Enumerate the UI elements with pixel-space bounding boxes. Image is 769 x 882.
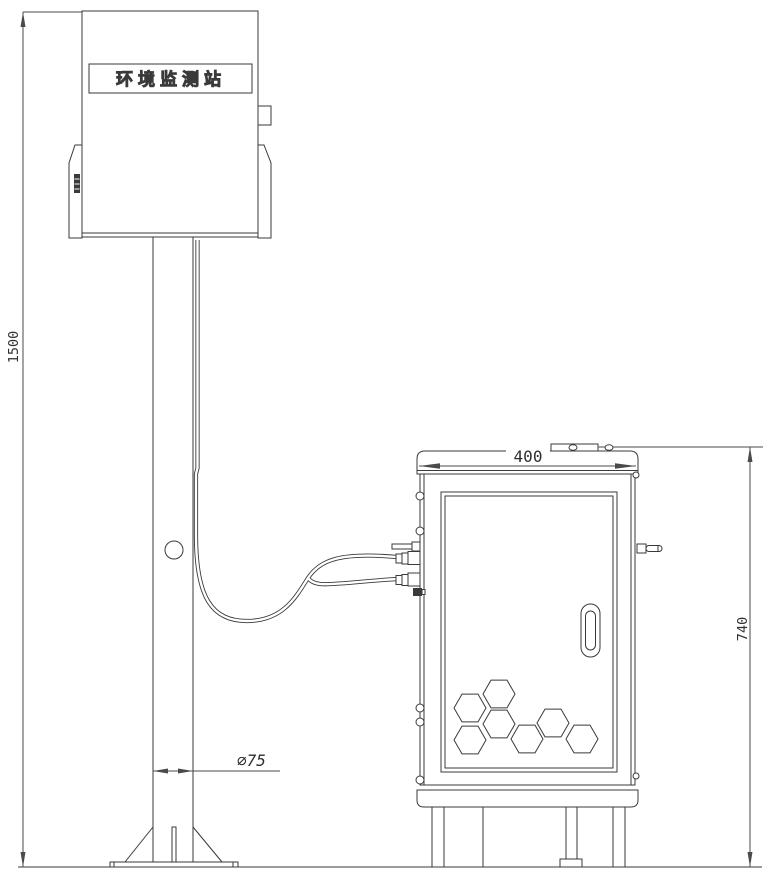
dimension-pole-diameter: ∅75 — [153, 751, 280, 774]
edge-detail — [633, 472, 639, 478]
left-gusset — [125, 827, 153, 862]
cable-upper-outline — [196, 240, 397, 621]
side-sensor-box — [258, 106, 271, 125]
right-leg-foot — [560, 859, 582, 867]
antenna-rod — [646, 546, 662, 552]
cable-gland-upper — [396, 554, 402, 563]
monitor-head-box: 环境监测站 — [69, 11, 271, 238]
dimension-value-740: 740 — [735, 617, 751, 641]
arrowhead-up — [21, 12, 26, 27]
antenna-mount — [637, 544, 646, 553]
dimension-pole-height: 1500 — [6, 12, 82, 867]
equipment-cabinet: 400 — [392, 444, 763, 867]
power-connector-tab — [422, 590, 425, 595]
top-hinge-knuckle — [605, 445, 613, 451]
connection-cables — [196, 240, 397, 621]
cable-gland-upper — [408, 552, 420, 565]
right-leg — [566, 807, 625, 867]
cable-gland-upper — [402, 553, 408, 564]
door-handle-outer — [581, 604, 600, 657]
cabinet-legs — [432, 807, 625, 867]
cable-upper-core — [196, 240, 397, 621]
cable-gland-lower — [396, 576, 402, 585]
sensor-rod-mount — [412, 542, 420, 551]
arrowhead-up — [748, 447, 753, 462]
hinge-knuckle — [416, 704, 424, 712]
hinge-knuckle — [416, 527, 424, 535]
hinge-knuckle — [416, 718, 424, 726]
pole-cable-hole — [165, 541, 183, 559]
hinge-knuckle — [416, 492, 424, 500]
arrowhead-down — [748, 852, 753, 867]
arrowhead-left — [153, 769, 168, 774]
dimension-value-1500: 1500 — [6, 331, 22, 364]
environmental-monitoring-station-drawing: 1500 环境监测站 ∅75 — [0, 0, 769, 882]
base-plate — [110, 862, 238, 867]
dimension-cabinet-height: 740 — [735, 447, 753, 867]
cabinet-bottom-cap — [417, 790, 638, 807]
sensor-rod — [392, 544, 412, 549]
hinge-knuckle — [416, 776, 424, 784]
dimension-value-diameter: ∅75 — [237, 751, 266, 770]
cable-gland-lower — [402, 575, 408, 586]
arrowhead-right — [178, 769, 193, 774]
arrowhead-down — [21, 852, 26, 867]
left-leg — [432, 807, 483, 867]
right-antenna — [637, 544, 662, 553]
station-name-label: 环境监测站 — [116, 69, 226, 90]
engineering-drawing-page: 1500 环境监测站 ∅75 — [0, 0, 769, 882]
power-connector — [413, 588, 422, 596]
mounting-pole — [110, 237, 238, 867]
top-hinge-knuckle — [569, 445, 577, 451]
edge-detail — [633, 773, 639, 779]
right-gusset — [193, 827, 222, 862]
center-rib — [172, 827, 176, 862]
dimension-value-400: 400 — [514, 447, 543, 466]
cable-gland-lower — [408, 573, 420, 586]
right-bracket — [258, 145, 271, 238]
monitor-box-body — [82, 11, 258, 237]
